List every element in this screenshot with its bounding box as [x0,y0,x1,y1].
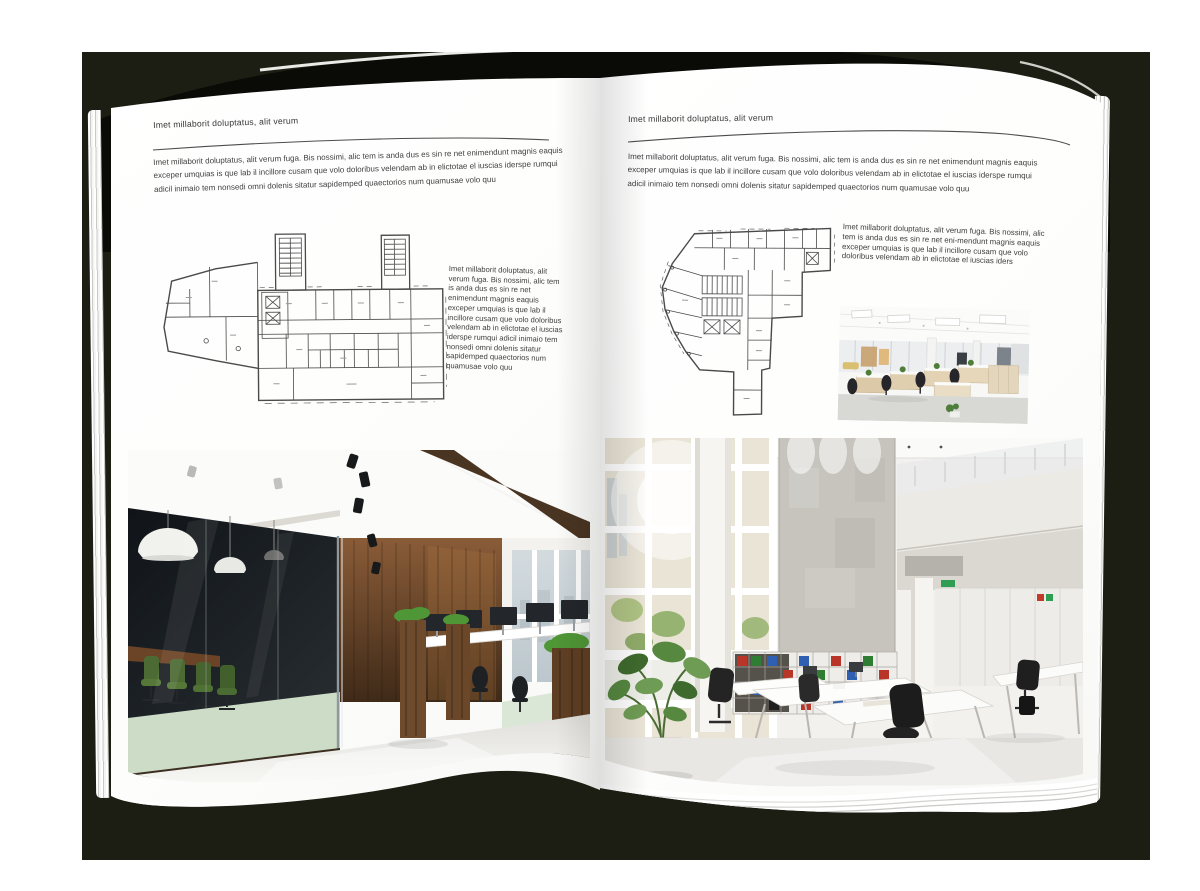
right-side-column: Imet millaborit doluptatus, alit verum f… [842,222,1045,268]
floorplan-right [643,219,840,422]
waste-bin [1019,696,1035,715]
mezzanine-balcony [897,438,1083,590]
photo-right-small [838,306,1030,424]
exit-sign [941,580,955,587]
page-left: Imet millaborit doluptatus, alit verum I… [103,68,600,818]
first-aid-signs [1037,594,1044,601]
glass-meeting-room [128,508,342,780]
photo-right-large [605,438,1083,790]
plan-room-labels [186,279,431,386]
floorplan-left [157,227,451,418]
carpet-floor [838,394,1029,424]
photo-left-large [128,450,590,782]
right-gutter-shadow [600,58,648,818]
magazine-spread-mockup: Imet millaborit doluptatus, alit verum I… [0,0,1200,891]
page-right: Imet millaborit doluptatus, alit verum I… [600,58,1105,818]
left-page-title: Imet millaborit doluptatus, alit verum [153,115,298,130]
right-page-title: Imet millaborit doluptatus, alit verum [628,112,773,124]
left-gutter-shadow [556,68,600,818]
left-side-column: Imet millaborit doluptatus, alit verum f… [446,264,567,374]
right-header-rule [626,128,1072,150]
concrete-feature-wall [779,438,895,652]
right-intro-paragraph: Imet millaborit doluptatus, alit verum f… [627,150,1052,197]
